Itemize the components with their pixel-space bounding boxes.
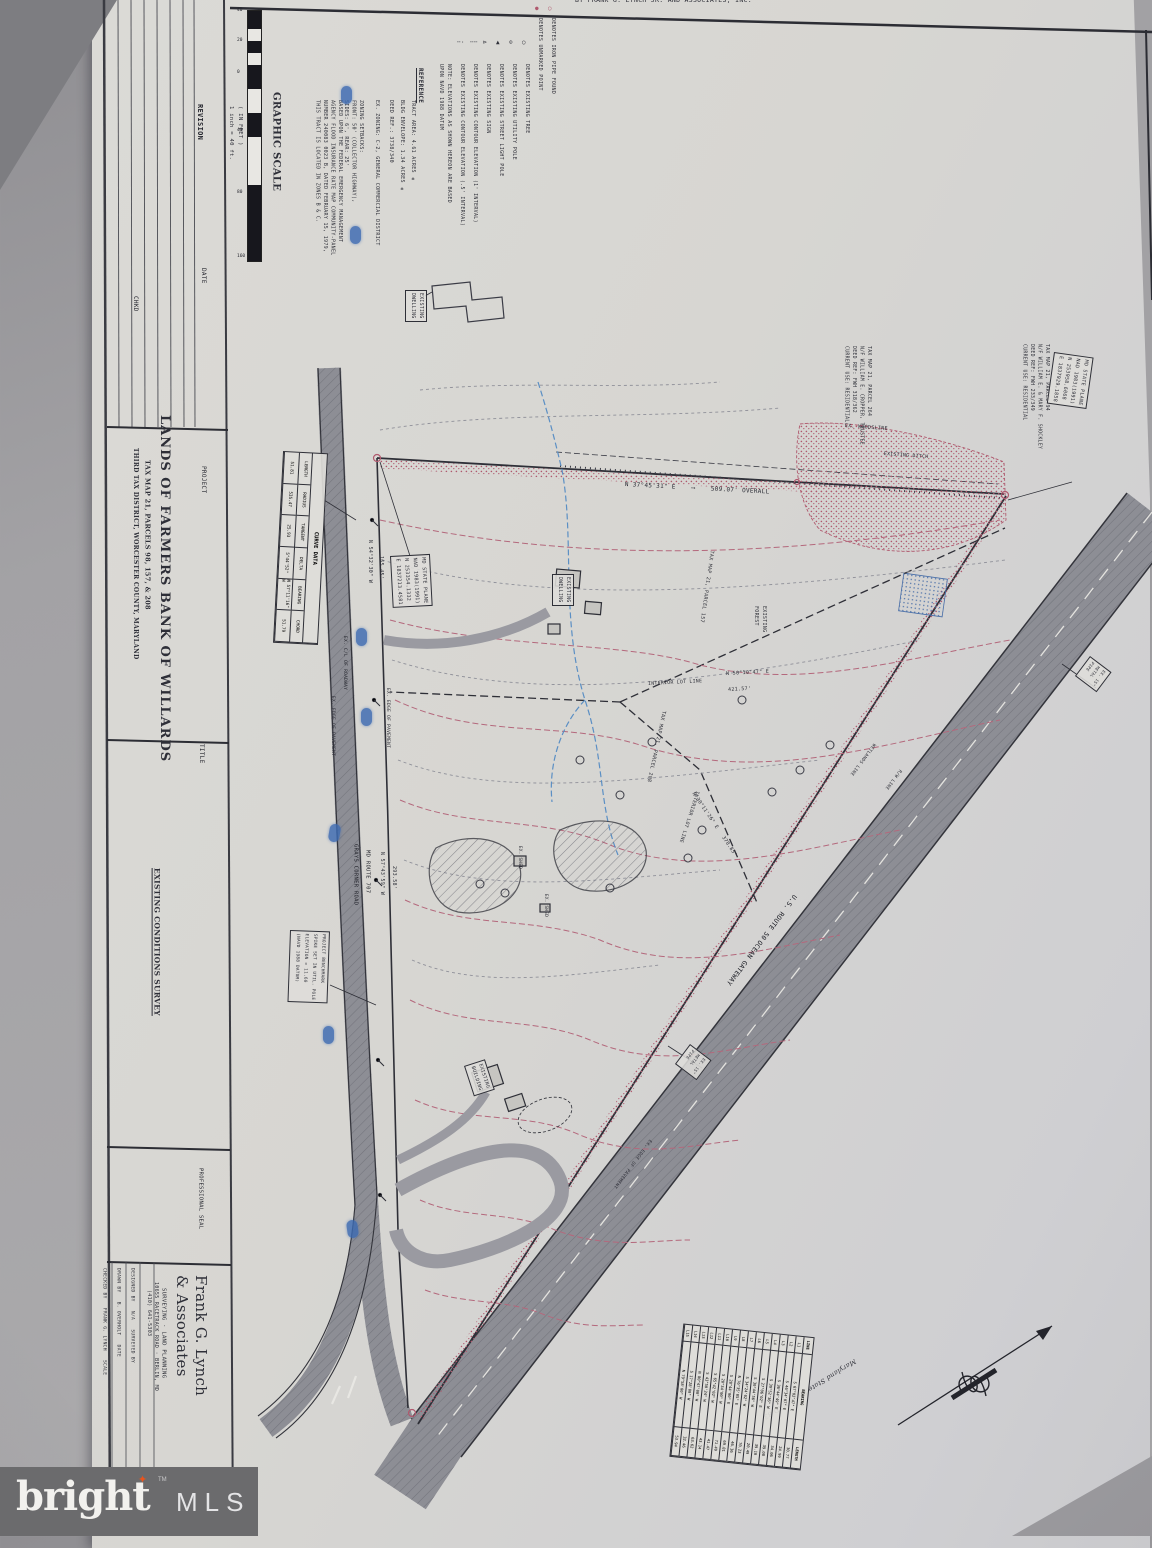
reference-item: DEED REF.: 3738/340 [387,100,395,163]
listing-photo-survey-plat: { "photo": { "top_note": "BY FRANK G. LY… [0,0,1152,1536]
highlighter-mark [350,226,361,244]
sign-icon: ⊳ [483,40,487,47]
road-distance-left-1: 165.45' [377,556,383,579]
tree-icon: ○ [522,40,526,47]
scale-tick-label: 40 [237,128,242,133]
legend-item: DENOTES EXISTING STREET LIGHT POLE [497,64,505,177]
legend-item: DENOTES EXISTING CONTOUR ELEVATION (.5' … [458,64,466,226]
existing-dwelling-label-site: EXISTING DWELLING [552,574,574,606]
contour-1ft-icon: ╌╌ [470,40,478,47]
utility-pole-icon: ⊙ [509,40,513,47]
project-parcels: TAX MAP 21, PARCELS 98, 157, & 208 [143,460,150,610]
iron-pipe-icon: ○ [548,6,552,13]
bright-logo-star-icon: ✦ [138,1469,147,1487]
graphic-scale-units: ( IN FEET ) 1 inch = 40 ft. [226,106,244,160]
reference-item: BLDG ENVELOPE: 1.34 ACRES ± [398,100,406,192]
wetlands-table-cell: LENGTH [791,1440,803,1470]
reference-item: BASED UPON THE FEDERAL EMERGENCY MANAGEM… [313,100,343,256]
parcel-264-info: TAX MAP 21, PARCEL 264 N/F WILLIAM E. CR… [842,346,872,445]
firm-checked-by-row: CHECKED BY FRANK G. LYNCH SCALE [101,1268,106,1375]
scale-tick-label: 80 [237,190,242,195]
legend-item: DENOTES IRON PIPE FOUND [549,18,557,94]
legend-item: DENOTES UNMARKED POINT [536,18,544,91]
revision-date-header: DATE [199,268,206,284]
road-distance-left-2: 293.58' [390,866,396,889]
highlighter-mark [361,708,372,726]
reference-item: EX. ZONING: C-2, GENERAL COMMERCIAL DIST… [373,100,381,246]
graphic-scale-title: GRAPHIC SCALE [270,92,282,191]
drawing-title: EXISTING CONDITIONS SURVEY [152,868,161,1016]
existing-dwelling-label-north: EXISTING DWELLING [405,290,427,322]
graphic-scale-bar [247,10,262,262]
scale-bar-segment [248,185,261,261]
project-benchmark-note: PROJECT BENCHMARK SPIKE SET IN UTIL. POL… [287,930,330,1004]
firm-address: 10655 RACETRACK ROAD · BERLIN, MD [152,1282,158,1391]
firm-designed-by-row: DESIGNED BY N/A SURVEYED BY [129,1268,134,1363]
road-bearing-left-2: N 57°43'59" W [378,852,384,895]
scale-bar-segment [248,53,261,65]
ex-edge-pavement-label-1: EX. EDGE OF PAVEMENT [330,696,335,756]
revision-chkd-header: CHKD [131,296,138,312]
trademark-symbol: TM [158,1477,167,1483]
road-bearing-left-1: N 54°32'30" W [366,540,372,583]
md-route-707-label: MD ROUTE 707 [364,850,370,893]
reference-item: ZONING SETBACKS: FRONT: 50' (COLLECTOR H… [342,100,365,203]
scale-tick-label: 40 [237,8,242,13]
legend-item: DENOTES EXISTING CONTOUR ELEVATION (1' I… [471,64,479,223]
project-name: LANDS OF FARMERS BANK OF WILLARDS [156,415,171,762]
revision-header: REVISION [196,104,204,140]
professional-seal-label: PROFESSIONAL SEAL [197,1168,203,1229]
scale-tick-label: 0 [237,70,240,75]
contour-half-ft-icon: ╌· [457,40,465,47]
existing-forest-label: EXISTING FOREST [752,606,768,632]
grays-corner-road-label: GRAYS CORNER ROAD [352,844,358,905]
unmarked-point-icon: ● [535,6,539,13]
legend-item: DENOTES EXISTING UTILITY POLE [510,64,518,160]
reference-header: REFERENCE [416,68,423,103]
firm-name: Frank G. Lynch & Associates [172,1275,210,1396]
top-edge-note: BY FRANK G. LYNCH JR. AND ASSOCIATES, IN… [575,0,752,4]
scale-bar-segment [248,29,261,41]
bright-logo-text: bright [16,1473,150,1520]
project-district: THIRD TAX DISTRICT, WORCESTER COUNTY, MA… [131,448,138,659]
scale-bar-segment [248,65,261,89]
wetlands-line-table: LINEBEARINGLENGTHL1S 67°02'47" E30.77L2S… [669,1323,814,1470]
street-light-icon: ▲ [496,40,500,47]
ex-edge-pavement-label-2: EX. EDGE OF PAVEMENT [385,688,390,748]
firm-drawn-by-row: DRAWN BY B. OVERHOLT DATE [115,1268,120,1357]
legend-item: NOTE: ELEVATIONS AS SHOWN HEREON ARE BAS… [437,64,453,203]
project-label: PROJECT [199,466,206,493]
parcel-94-info: TAX MAP 21, PARCEL 94 N/F WILLIAM E. & M… [1020,344,1050,449]
scale-bar-segment [248,137,261,185]
reference-item: TRACT AREA: 4.61 ACRES ± [409,100,417,182]
wetlands-table-cell: LINE [803,1337,814,1355]
highlighter-mark [356,628,367,646]
interior-distance-1: 421.57' [728,687,751,694]
firm-phone: (410) 641-5303 [145,1290,151,1336]
scale-bar-segment [248,89,261,113]
ex-centerline-roadway-label: EX. C/L OF ROADWAY [342,636,347,690]
ex-shed-label-1: EX. SHED [516,846,521,869]
highlighter-mark [323,1026,334,1044]
mls-logo-text: MLS [176,1487,250,1518]
scale-tick-label: 20 [237,38,242,43]
bright-mls-watermark: bright ✦ TM MLS [0,1467,258,1536]
state-plane-coord-west: MD STATE PLANE NAD 1983(1991) N 253354.1… [390,554,433,608]
state-plane-coord-ne: MD STATE PLANE NAD 1983(1991) N 253958.6… [1047,352,1094,409]
scale-tick-label: 160 [237,254,245,259]
title-label: TITLE [197,744,204,764]
scale-bar-segment [248,41,261,53]
legend-item: DENOTES EXISTING SIGN [484,64,492,134]
ex-shed-label-2: EX. SHED [542,894,547,917]
highlighter-mark [341,86,352,104]
scale-bar-segment [248,11,261,29]
scale-bar-segment [248,113,261,137]
legend-item: DENOTES EXISTING TREE [523,64,531,134]
firm-services: SURVEYING · LAND PLANNING [160,1288,166,1378]
